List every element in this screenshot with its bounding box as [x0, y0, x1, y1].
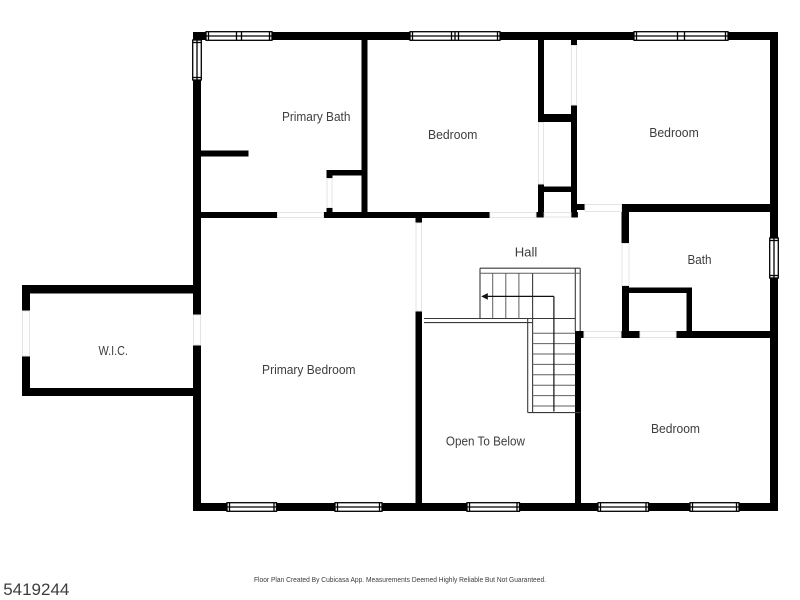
- svg-text:Primary Bedroom: Primary Bedroom: [262, 362, 356, 377]
- svg-text:Primary Bath: Primary Bath: [282, 109, 351, 124]
- svg-text:Open To Below: Open To Below: [446, 433, 525, 448]
- svg-text:W.I.C.: W.I.C.: [98, 343, 128, 358]
- svg-text:5419244: 5419244: [3, 580, 69, 599]
- svg-text:Floor Plan Created By Cubicasa: Floor Plan Created By Cubicasa App. Meas…: [254, 575, 546, 584]
- svg-text:Bedroom: Bedroom: [649, 125, 699, 140]
- svg-text:Bedroom: Bedroom: [428, 127, 477, 142]
- svg-text:Bath: Bath: [688, 252, 712, 267]
- svg-text:Bedroom: Bedroom: [651, 421, 700, 436]
- svg-text:Hall: Hall: [515, 245, 538, 260]
